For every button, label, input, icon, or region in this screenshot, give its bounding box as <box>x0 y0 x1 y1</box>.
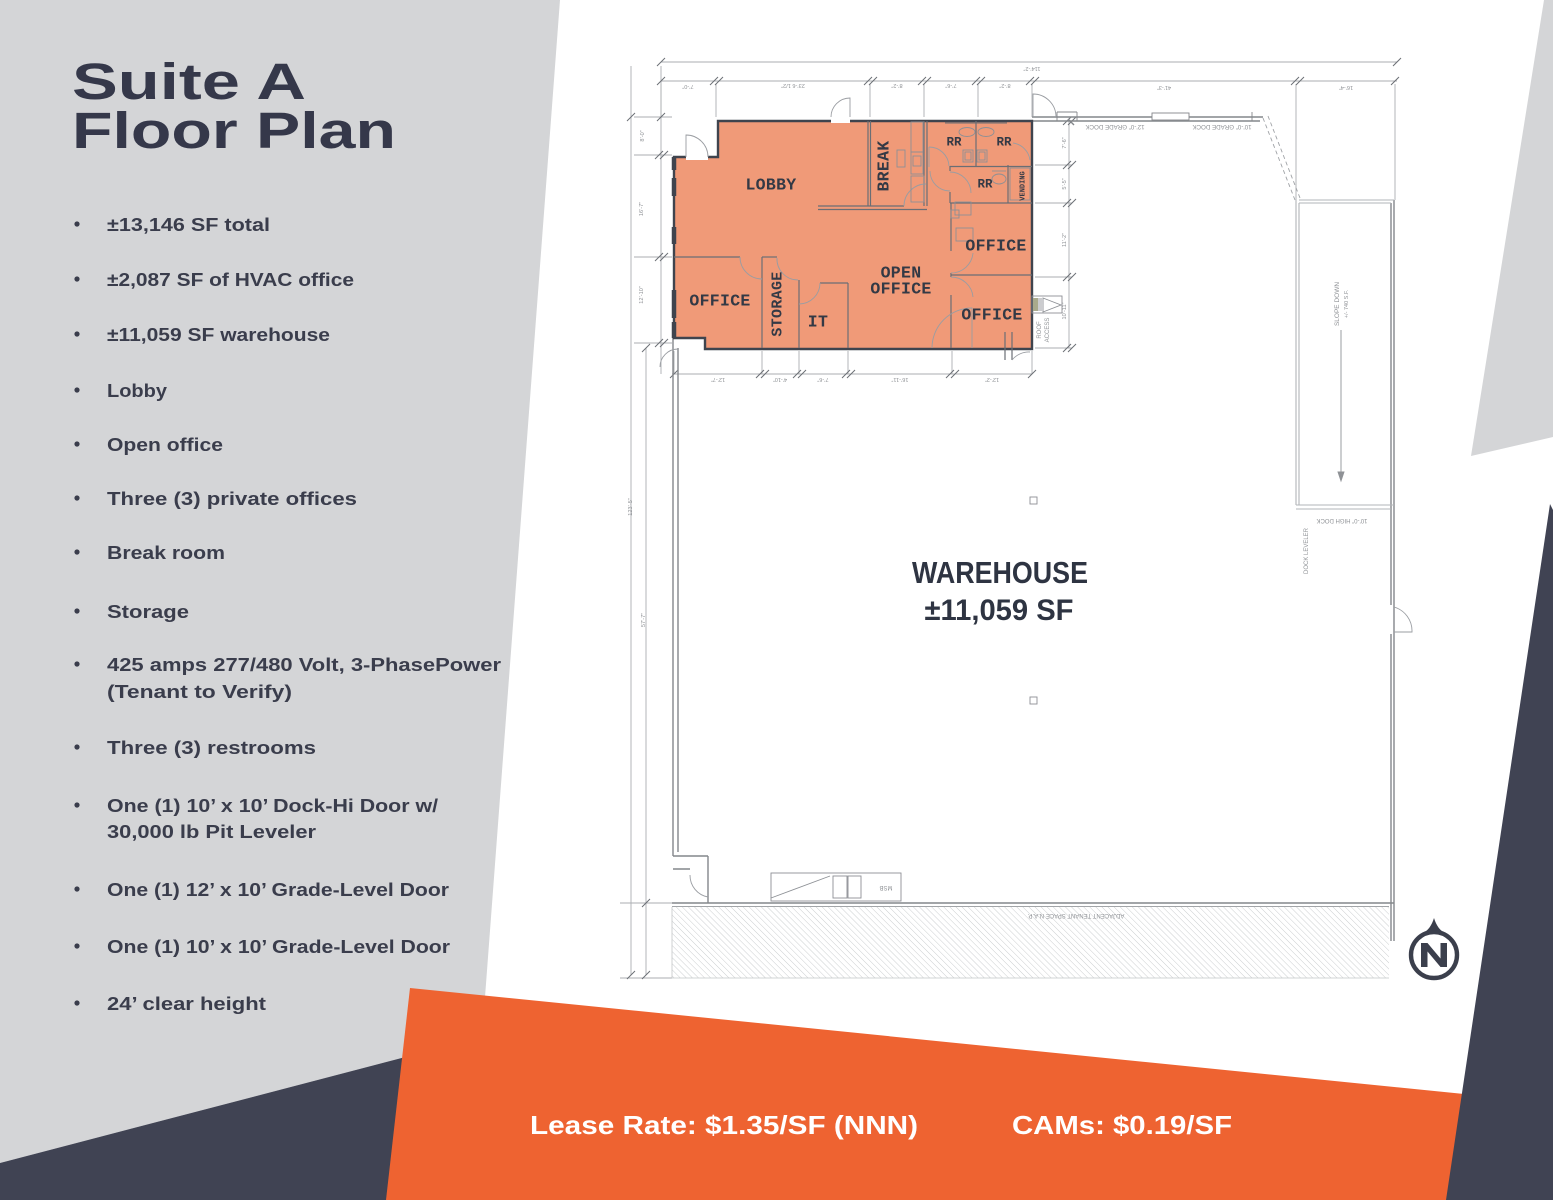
svg-text:Three (3) restrooms: Three (3) restrooms <box>107 737 316 758</box>
svg-text:425 amps 277/480 Volt, 3-Phase: 425 amps 277/480 Volt, 3-PhasePower <box>107 654 501 675</box>
svg-text:OFFICE: OFFICE <box>870 280 931 299</box>
svg-text:Storage: Storage <box>107 601 189 622</box>
svg-text:ROOF: ROOF <box>1037 321 1043 339</box>
svg-text:STORAGE: STORAGE <box>770 271 787 336</box>
svg-text:12’-7”: 12’-7” <box>711 376 725 382</box>
svg-text:41’-3”: 41’-3” <box>1157 84 1171 90</box>
svg-text:±11,059 SF: ±11,059 SF <box>925 594 1074 627</box>
svg-text:24’ clear height: 24’ clear height <box>107 993 266 1014</box>
svg-text:RR: RR <box>977 178 993 192</box>
svg-text:12’-2”: 12’-2” <box>985 376 999 382</box>
svg-text:10’-0” GRADE DOCK: 10’-0” GRADE DOCK <box>1192 123 1252 130</box>
svg-text:57’-7”: 57’-7” <box>641 613 647 627</box>
svg-text:16’-4”: 16’-4” <box>1339 84 1353 90</box>
svg-text:WAREHOUSE: WAREHOUSE <box>912 555 1088 590</box>
svg-text:7’-0”: 7’-0” <box>682 83 693 89</box>
svg-text:30,000 lb Pit Leveler: 30,000 lb Pit Leveler <box>107 821 316 842</box>
svg-text:Lease Rate: $1.35/SF (NNN): Lease Rate: $1.35/SF (NNN) <box>530 1110 918 1140</box>
svg-text:12’-10”: 12’-10” <box>639 286 645 304</box>
svg-text:IT: IT <box>808 313 828 332</box>
svg-text:(Tenant to Verify): (Tenant to Verify) <box>107 681 292 702</box>
svg-text:One (1) 10’ x 10’ Grade-Level: One (1) 10’ x 10’ Grade-Level Door <box>107 936 450 957</box>
svg-text:7’-6”: 7’-6” <box>817 376 828 382</box>
svg-text:RR: RR <box>996 136 1012 150</box>
svg-text:±11,059 SF warehouse: ±11,059 SF warehouse <box>107 324 330 345</box>
svg-text:CAMs: $0.19/SF: CAMs: $0.19/SF <box>1012 1110 1232 1140</box>
svg-text:BREAK: BREAK <box>875 140 894 191</box>
svg-text:Lobby: Lobby <box>107 380 168 401</box>
svg-text:ACCESS: ACCESS <box>1045 318 1051 343</box>
svg-text:Break room: Break room <box>107 542 225 563</box>
svg-text:Three (3) private offices: Three (3) private offices <box>107 488 357 509</box>
svg-text:123’-5”: 123’-5” <box>628 498 634 516</box>
svg-text:Open office: Open office <box>107 434 223 455</box>
svg-text:±13,146 SF total: ±13,146 SF total <box>107 214 270 235</box>
svg-text:7’-6”: 7’-6” <box>1062 137 1068 148</box>
svg-text:OFFICE: OFFICE <box>965 237 1026 256</box>
svg-text:7’-6”: 7’-6” <box>945 82 956 88</box>
svg-text:+/- 740 S.F.: +/- 740 S.F. <box>1344 289 1350 318</box>
svg-text:12’-0” GRADE DOCK: 12’-0” GRADE DOCK <box>1085 123 1145 130</box>
svg-text:8’-2”: 8’-2” <box>999 82 1010 88</box>
svg-text:One (1) 12’ x 10’ Grade-Level: One (1) 12’ x 10’ Grade-Level Door <box>107 879 449 900</box>
svg-text:MSB: MSB <box>879 884 892 890</box>
svg-text:OFFICE: OFFICE <box>961 306 1022 325</box>
svg-text:One (1) 10’ x 10’ Dock-Hi Door: One (1) 10’ x 10’ Dock-Hi Door w/ <box>107 795 438 816</box>
svg-text:10’-0” HIGH DOCK: 10’-0” HIGH DOCK <box>1316 517 1367 523</box>
svg-text:10’-11”: 10’-11” <box>1062 302 1068 319</box>
svg-text:±2,087 SF of HVAC office: ±2,087 SF of HVAC office <box>107 269 354 290</box>
svg-text:OFFICE: OFFICE <box>689 292 750 311</box>
svg-text:114’-2”: 114’-2” <box>1023 65 1040 71</box>
svg-text:SLOPE DOWN: SLOPE DOWN <box>1334 282 1341 326</box>
svg-text:8’-0”: 8’-0” <box>640 130 646 141</box>
svg-text:ADJACENT TENANT SPACE N.A.P.: ADJACENT TENANT SPACE N.A.P. <box>1027 912 1124 918</box>
svg-text:4’-10”: 4’-10” <box>773 376 787 382</box>
svg-text:8’-2”: 8’-2” <box>891 82 902 88</box>
svg-text:VENDING: VENDING <box>1020 171 1028 200</box>
svg-text:RR: RR <box>946 136 962 150</box>
svg-text:Floor Plan: Floor Plan <box>72 102 396 159</box>
svg-text:11’-2”: 11’-2” <box>1062 233 1068 247</box>
svg-text:16’-11”: 16’-11” <box>891 376 908 382</box>
svg-text:5’-5”: 5’-5” <box>1062 178 1068 189</box>
svg-text:23’-6 1/2”: 23’-6 1/2” <box>781 82 805 88</box>
svg-text:LOBBY: LOBBY <box>745 176 796 195</box>
svg-text:DOCK LEVELER: DOCK LEVELER <box>1304 527 1310 574</box>
svg-text:16’-7”: 16’-7” <box>639 202 645 216</box>
